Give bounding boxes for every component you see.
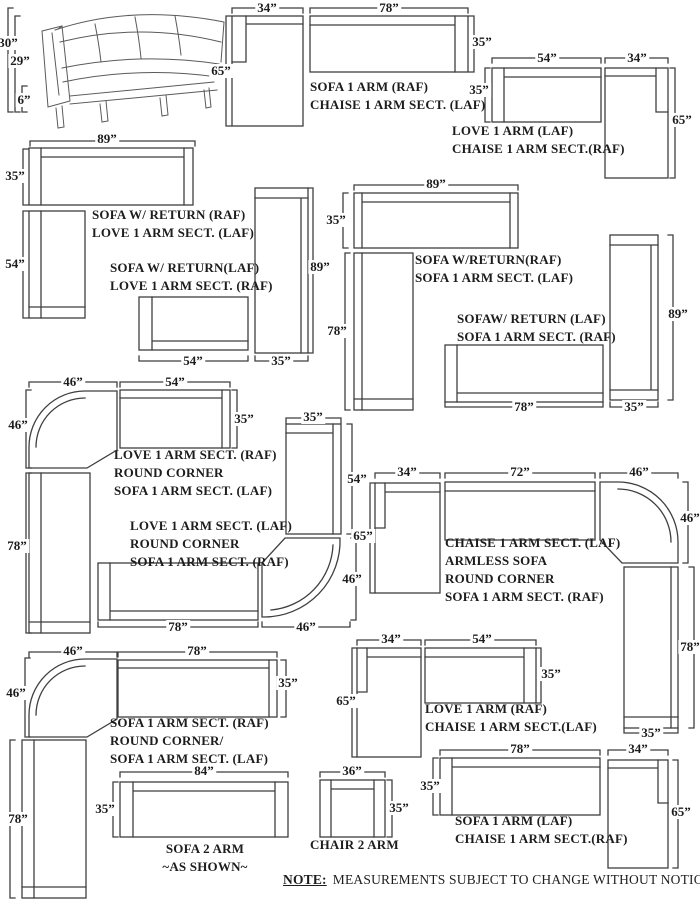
- l-chaise-length-dim: 65”: [669, 805, 693, 819]
- piece-e-sofa-horizontal: [445, 345, 603, 402]
- e-config-label-raf: SOFA W/RETURN(RAF)SOFA 1 ARM SECT. (LAF): [415, 251, 573, 287]
- l-config-label: SOFA 1 ARM (LAF)CHAISE 1 ARM SECT.(RAF): [455, 812, 628, 848]
- piece-h-chaise: [375, 483, 440, 593]
- d-config-label-raf: SOFA W/ RETURN (RAF)LOVE 1 ARM SECT. (LA…: [92, 206, 254, 242]
- f-love-width-dim: 54”: [163, 375, 187, 389]
- k-chair-width-dim: 36”: [340, 764, 364, 778]
- b-chaise-length-dim: 65”: [209, 64, 233, 78]
- i-sect-length-dim: 78”: [6, 812, 30, 826]
- g-love-width-dim: 35”: [301, 410, 325, 424]
- sketch-leg-height-dim: 6”: [16, 93, 33, 107]
- piece-m-chaise: [357, 648, 421, 757]
- h-chaise-width-dim: 34”: [395, 465, 419, 479]
- f-love-depth-dim: 35”: [232, 412, 256, 426]
- b-sofa-width-dim: 78”: [377, 1, 401, 15]
- l-sofa-width-dim: 78”: [508, 742, 532, 756]
- i-corner-depth-dim: 46”: [4, 686, 28, 700]
- piece-b-chaise: [232, 16, 303, 126]
- piece-f-corner: [29, 391, 117, 468]
- g-corner-width-dim: 46”: [294, 620, 318, 634]
- piece-i-corner: [29, 659, 117, 737]
- g-love-length-dim: 54”: [345, 472, 369, 486]
- c-config-label: LOVE 1 ARM (LAF)CHAISE 1 ARM SECT.(RAF): [452, 122, 625, 158]
- d-config-label-laf: SOFA W/ RETURN(LAF)LOVE 1 ARM SECT. (RAF…: [110, 259, 273, 295]
- piece-f-love: [120, 390, 230, 448]
- k-config-label: CHAIR 2 ARM: [310, 836, 399, 854]
- e-sect-length-dim: 89”: [666, 307, 690, 321]
- j-config-label: SOFA 2 ARM~AS SHOWN~: [162, 840, 247, 876]
- piece-i-sofa: [118, 660, 277, 717]
- piece-l-sofa: [440, 758, 600, 815]
- piece-b-sofa: [310, 16, 468, 72]
- sketch-back-height-dim: 29”: [8, 54, 32, 68]
- d-sofa-depth-dim: 35”: [3, 169, 27, 183]
- m-love-depth-dim: 35”: [539, 667, 563, 681]
- piece-h-sect-vertical: [624, 567, 678, 728]
- e-sofa-depth-dim: 35”: [324, 213, 348, 227]
- piece-d-sofa: [29, 148, 193, 205]
- d-sofa-width-dim: 89”: [95, 132, 119, 146]
- piece-g-sofa: [98, 563, 258, 620]
- i-corner-width-dim: 46”: [61, 644, 85, 658]
- m-love-width-dim: 54”: [470, 632, 494, 646]
- piece-f-sofa-vertical: [29, 473, 90, 633]
- g-config-label: LOVE 1 ARM SECT. (LAF)ROUND CORNERSOFA 1…: [130, 517, 292, 571]
- l-sofa-depth-dim: 35”: [418, 779, 442, 793]
- piece-k-chair: [320, 780, 385, 837]
- m-config-label: LOVE 1 ARM (RAF)CHAISE 1 ARM SECT.(LAF): [425, 700, 597, 736]
- i-config-label: SOFA 1 ARM SECT. (RAF)ROUND CORNER/SOFA …: [110, 714, 269, 768]
- h-sect-length-dim: 78”: [678, 640, 700, 654]
- piece-m-love: [425, 648, 536, 703]
- b-chaise-width-dim: 34”: [255, 1, 279, 15]
- sectional-dimension-sheet: 30” 29” 6” 34” 78” 35” 65” 54” 34” 35” 6…: [0, 0, 700, 901]
- l-chaise-width-dim: 34”: [626, 742, 650, 756]
- piece-i-sofa-vertical: [22, 740, 86, 898]
- piece-j-sofa: [120, 782, 288, 837]
- e-dim-brackets: [343, 185, 673, 410]
- d-sect-width-dim: 35”: [269, 354, 293, 368]
- h-chaise-length-dim: 65”: [351, 529, 375, 543]
- m-chaise-width-dim: 34”: [379, 632, 403, 646]
- j-sofa-depth-dim: 35”: [93, 802, 117, 816]
- i-sofa-depth-dim: 35”: [276, 676, 300, 690]
- h-sect-width-dim: 35”: [639, 726, 663, 740]
- f-corner-depth-dim: 46”: [6, 418, 30, 432]
- g-corner-depth-dim: 46”: [340, 572, 364, 586]
- piece-e-return-vertical: [354, 253, 413, 410]
- b-config-label: SOFA 1 ARM (RAF)CHAISE 1 ARM SECT. (LAF): [310, 78, 485, 114]
- g-sofa-width-dim: 78”: [166, 620, 190, 634]
- piece-g-love-vertical: [286, 424, 341, 534]
- sketch-overall-height-dim: 30”: [0, 36, 20, 50]
- h-config-label: CHAISE 1 ARM SECT. (LAF)ARMLESS SOFAROUN…: [445, 534, 620, 606]
- d-sect-length-dim: 89”: [308, 260, 332, 274]
- piece-d-love-vertical: [29, 211, 85, 318]
- b-sofa-depth-dim: 35”: [470, 35, 494, 49]
- piece-h-armless-sofa: [445, 482, 595, 540]
- d-return-length-dim: 54”: [3, 257, 27, 271]
- h-armless-width-dim: 72”: [508, 465, 532, 479]
- k-chair-depth-dim: 35”: [387, 801, 411, 815]
- piece-c-love: [492, 68, 601, 122]
- c-love-width-dim: 54”: [535, 51, 559, 65]
- d-love-width-dim: 54”: [181, 354, 205, 368]
- h-corner-depth-dim: 46”: [678, 511, 700, 525]
- m-chaise-length-dim: 65”: [334, 694, 358, 708]
- f-dim-brackets: [26, 382, 237, 633]
- note-text: MEASUREMENTS SUBJECT TO CHANGE WITHOUT N…: [333, 872, 700, 887]
- note-label: NOTE:: [283, 872, 327, 887]
- f-config-label: LOVE 1 ARM SECT. (RAF)ROUND CORNERSOFA 1…: [114, 446, 277, 500]
- c-chaise-length-dim: 65”: [670, 113, 694, 127]
- e-return-length-dim: 78”: [325, 324, 349, 338]
- i-sofa-width-dim: 78”: [185, 644, 209, 658]
- c-chaise-width-dim: 34”: [625, 51, 649, 65]
- sofa-perspective-sketch: [42, 15, 224, 128]
- h-corner-width-dim: 46”: [627, 465, 651, 479]
- piece-e-sect-vertical: [610, 235, 658, 400]
- note: NOTE:MEASUREMENTS SUBJECT TO CHANGE WITH…: [283, 872, 700, 888]
- e-sofa-width-dim: 89”: [424, 177, 448, 191]
- f-corner-width-dim: 46”: [61, 375, 85, 389]
- e-config-label-laf: SOFAW/ RETURN (LAF)SOFA 1 ARM SECT. (RAF…: [457, 310, 616, 346]
- piece-e-sofa: [354, 193, 518, 248]
- e-sofa2-width-dim: 78”: [512, 400, 536, 414]
- f-sofa-length-dim: 78”: [5, 539, 29, 553]
- piece-d-love-horizontal: [139, 297, 248, 350]
- d-dim-brackets: [23, 141, 313, 361]
- e-sect-width-dim: 35”: [622, 400, 646, 414]
